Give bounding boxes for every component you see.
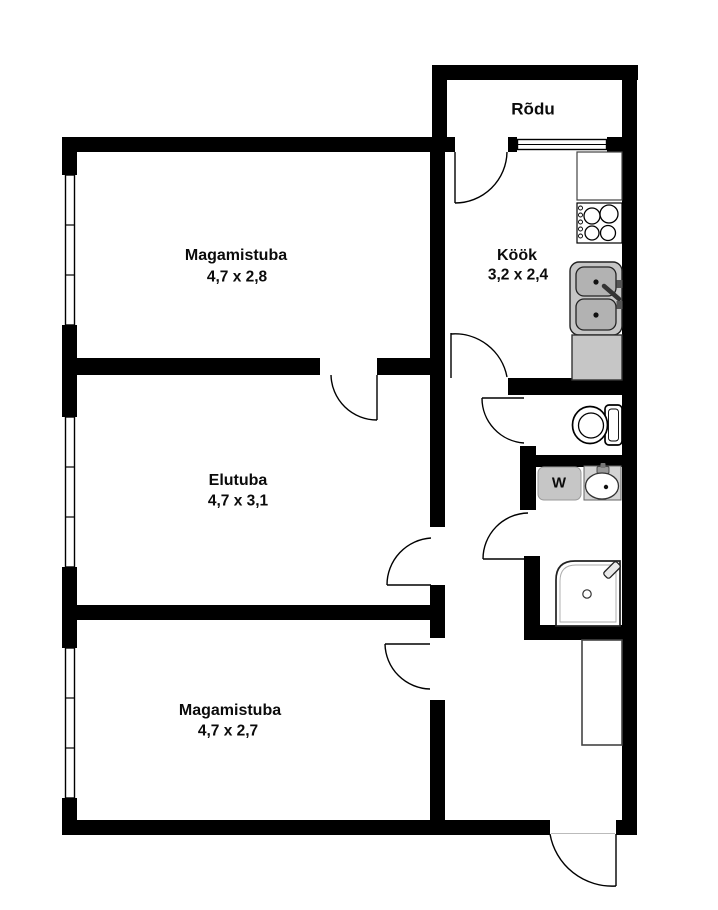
kitchen-sink-icon: [570, 262, 623, 335]
bedroom-top-window: [62, 175, 77, 325]
toilet-icon: [573, 405, 623, 445]
kitchen-window: [517, 137, 607, 152]
wc-door: [482, 398, 524, 443]
bedroom-top-door: [331, 375, 377, 420]
floor-plan: Rõdu Magamistuba 4,7 x 2,8 Köök 3,2 x 2,…: [0, 0, 718, 910]
kitchen-worktop: [577, 152, 622, 200]
doors: [331, 152, 616, 886]
balcony-label: Rõdu: [511, 98, 554, 119]
living-room-window: [62, 417, 77, 567]
bedroom-bottom-label: Magamistuba: [179, 701, 281, 721]
bedroom-top-dims: 4,7 x 2,8: [207, 267, 267, 286]
living-room-label: Elutuba: [209, 471, 268, 491]
kitchen-counter: [572, 335, 622, 380]
entrance-door: [550, 834, 616, 887]
bathroom-sink-icon: [584, 463, 621, 500]
kitchen-door: [451, 333, 507, 378]
bedroom-bottom-window: [62, 648, 77, 798]
kitchen-fixtures: [570, 152, 623, 380]
floor-plan-drawing: [0, 0, 718, 910]
shower-room-door: [483, 513, 528, 559]
bedroom-bottom-dims: 4,7 x 2,7: [198, 721, 258, 740]
bedroom-top-label: Magamistuba: [185, 246, 287, 266]
washing-machine-label: W: [552, 475, 566, 494]
living-room-dims: 4,7 x 3,1: [208, 491, 268, 510]
balcony-door: [455, 152, 507, 203]
kitchen-label: Köök: [497, 246, 537, 266]
kitchen-dims: 3,2 x 2,4: [488, 265, 548, 284]
bedroom-bottom-door: [385, 644, 430, 689]
walls: [62, 65, 638, 835]
closet: [582, 640, 622, 745]
stove-icon: [577, 203, 622, 243]
living-room-door: [387, 538, 431, 585]
shower-tray-icon: [556, 561, 621, 626]
